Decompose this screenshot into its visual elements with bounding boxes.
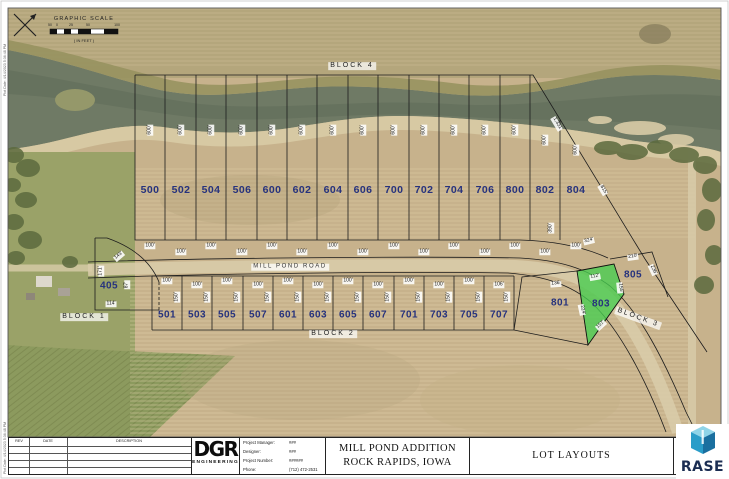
lot-number: 801 bbox=[551, 298, 569, 309]
block1-label: BLOCK 1 bbox=[60, 313, 108, 321]
dim-label: 150' bbox=[295, 291, 301, 302]
info-value: (712) 472-2531 bbox=[289, 467, 318, 472]
dim-label: 100' bbox=[433, 282, 444, 288]
dim-label: 600' bbox=[269, 124, 275, 135]
road-name-label: MILL POND ROAD bbox=[251, 264, 329, 271]
lot-number: 704 bbox=[445, 185, 464, 197]
dgr-logo: DGR ENGINEERING bbox=[191, 438, 239, 474]
lot-number: 700 bbox=[385, 185, 404, 197]
lot-number: 805 bbox=[624, 270, 642, 281]
dim-label: 600' bbox=[239, 124, 245, 135]
graphic-scale-title: GRAPHIC SCALE bbox=[54, 16, 114, 22]
dim-label: 100' bbox=[357, 249, 368, 255]
dim-label: 100' bbox=[327, 243, 338, 249]
info-value: ### bbox=[289, 440, 296, 445]
dim-label: 100' bbox=[266, 243, 277, 249]
dim-label: 100' bbox=[509, 243, 520, 249]
dim-label: 100' bbox=[539, 249, 550, 255]
plot-note-bottom: Plot Date: 4/14/2023 5:36:48 PM bbox=[3, 422, 7, 474]
dim-label: 150' bbox=[446, 291, 452, 302]
rev-header: REV bbox=[15, 439, 23, 443]
dim-label: 150' bbox=[385, 291, 391, 302]
lot-number: 405 bbox=[100, 281, 118, 292]
dim-label: 600' bbox=[451, 124, 457, 135]
dim-label: 100' bbox=[342, 278, 353, 284]
dim-label: 600' bbox=[330, 124, 336, 135]
dim-label: 100' bbox=[144, 243, 155, 249]
lot-number: 506 bbox=[233, 185, 252, 197]
lot-number: 601 bbox=[279, 310, 297, 321]
revision-table: REV DATE DESCRIPTION bbox=[9, 438, 191, 474]
dim-label: 150' bbox=[265, 291, 271, 302]
dim-label: 100' bbox=[236, 249, 247, 255]
sheet-title: LOT LAYOUTS bbox=[470, 450, 673, 461]
dim-label: 600' bbox=[208, 124, 214, 135]
lot-number: 501 bbox=[158, 310, 176, 321]
description-header: DESCRIPTION bbox=[116, 439, 142, 443]
lot-number: 703 bbox=[430, 310, 448, 321]
scale-tick: 25 bbox=[69, 24, 73, 28]
dim-label: 150' bbox=[234, 291, 240, 302]
dim-label: 100' bbox=[161, 278, 172, 284]
date-header: DATE bbox=[43, 439, 53, 443]
dim-label: 600' bbox=[573, 144, 579, 155]
dim-label: 100' bbox=[463, 278, 474, 284]
block2-label: BLOCK 2 bbox=[309, 330, 357, 338]
plat-sheet: GRAPHIC SCALE ( IN FEET ) 50 0 25 50 100… bbox=[0, 0, 729, 479]
dim-label: 100' bbox=[191, 282, 202, 288]
lot-number: 602 bbox=[293, 185, 312, 197]
rase-logo: RASE bbox=[676, 424, 729, 479]
scale-tick: 100 bbox=[114, 24, 120, 28]
lot-number: 607 bbox=[369, 310, 387, 321]
dim-label: 390' bbox=[548, 222, 554, 233]
dim-label: 100' bbox=[570, 243, 581, 249]
dim-label: 150' bbox=[325, 291, 331, 302]
dim-label: 150' bbox=[204, 291, 210, 302]
lot-number: 605 bbox=[339, 310, 357, 321]
dgr-logo-subtext: ENGINEERING bbox=[192, 460, 239, 465]
dim-label: 100' bbox=[282, 278, 293, 284]
scale-tick: 50 bbox=[48, 24, 52, 28]
aerial-photo bbox=[3, 8, 723, 437]
plot-note-top: Plot Date: 4/14/2023 5:36:48 PM bbox=[3, 44, 7, 96]
lot-number: 800 bbox=[506, 185, 525, 197]
dim-label: 106' bbox=[493, 282, 504, 288]
scale-tick: 0 bbox=[56, 24, 58, 28]
dim-label: 150' bbox=[416, 291, 422, 302]
lot-number: 702 bbox=[415, 185, 434, 197]
dim-label: 171' bbox=[98, 265, 104, 276]
lot-number: 707 bbox=[490, 310, 508, 321]
dim-label: 100' bbox=[479, 249, 490, 255]
dim-label: 100' bbox=[448, 243, 459, 249]
dim-label: 224' bbox=[578, 304, 586, 316]
scale-units: ( IN FEET ) bbox=[74, 39, 94, 43]
sheet-title-cell: LOT LAYOUTS bbox=[469, 438, 673, 474]
dim-label: 600' bbox=[512, 124, 518, 135]
dim-label: 150' bbox=[504, 291, 510, 302]
dim-label: 87' bbox=[124, 281, 130, 290]
project-title-cell: MILL POND ADDITION ROCK RAPIDS, IOWA bbox=[325, 438, 469, 474]
dim-label: 600' bbox=[421, 124, 427, 135]
lot-number: 603 bbox=[309, 310, 327, 321]
dim-label: 150' bbox=[476, 291, 482, 302]
block4-label: BLOCK 4 bbox=[328, 62, 376, 70]
project-info: Project Manager:### Designer:### Project… bbox=[239, 438, 325, 474]
lot-number: 705 bbox=[460, 310, 478, 321]
dgr-logo-text: DGR bbox=[192, 438, 239, 460]
rase-logo-text: RASE bbox=[676, 459, 729, 475]
dim-label: 600' bbox=[542, 134, 548, 145]
lot-number: 706 bbox=[476, 185, 495, 197]
title-block: REV DATE DESCRIPTION DGR ENGINEERING Pro… bbox=[8, 437, 690, 475]
dim-label: 100' bbox=[312, 282, 323, 288]
lot-number: 701 bbox=[400, 310, 418, 321]
dim-label: 114' bbox=[106, 301, 117, 307]
dim-label: 600' bbox=[360, 124, 366, 135]
lot-number: 802 bbox=[536, 185, 555, 197]
dim-label: 100' bbox=[221, 278, 232, 284]
dim-label: 100' bbox=[205, 243, 216, 249]
scale-bar bbox=[50, 29, 118, 34]
dim-label: 155' bbox=[617, 282, 624, 294]
dim-label: 100' bbox=[388, 243, 399, 249]
dim-label: 136' bbox=[550, 281, 562, 287]
lot-number: 502 bbox=[172, 185, 191, 197]
dim-label: 150' bbox=[355, 291, 361, 302]
dim-label: 100' bbox=[403, 278, 414, 284]
lot-number: 504 bbox=[202, 185, 221, 197]
dim-label: 600' bbox=[391, 124, 397, 135]
scale-tick: 50 bbox=[86, 24, 90, 28]
dim-label: 100' bbox=[296, 249, 307, 255]
info-value: ###### bbox=[289, 458, 303, 463]
lot-number: 500 bbox=[141, 185, 160, 197]
lot-number: 606 bbox=[354, 185, 373, 197]
aerial-plat-drawing bbox=[0, 0, 729, 479]
info-label: Designer: bbox=[243, 449, 261, 454]
info-label: Project Number: bbox=[243, 458, 273, 463]
project-title-line1: MILL POND ADDITION bbox=[326, 443, 469, 454]
lot-number: 505 bbox=[218, 310, 236, 321]
dim-label: 100' bbox=[175, 249, 186, 255]
lot-number: 604 bbox=[324, 185, 343, 197]
dim-label: 600' bbox=[147, 124, 153, 135]
lot-number: 804 bbox=[567, 185, 586, 197]
dim-label: 600' bbox=[299, 124, 305, 135]
project-title-line2: ROCK RAPIDS, IOWA bbox=[326, 457, 469, 468]
dim-label: 150' bbox=[174, 291, 180, 302]
dim-label: 100' bbox=[372, 282, 383, 288]
info-label: Project Manager: bbox=[243, 440, 275, 445]
info-label: Phone: bbox=[243, 467, 256, 472]
dim-label: 100' bbox=[252, 282, 263, 288]
lot-number: 803 bbox=[592, 299, 610, 310]
rase-cube-icon bbox=[688, 424, 718, 456]
info-value: ### bbox=[289, 449, 296, 454]
dim-label: 100' bbox=[418, 249, 429, 255]
lot-number: 507 bbox=[249, 310, 267, 321]
lot-number: 503 bbox=[188, 310, 206, 321]
dim-label: 600' bbox=[482, 124, 488, 135]
lot-number: 600 bbox=[263, 185, 282, 197]
dim-label: 600' bbox=[178, 124, 184, 135]
